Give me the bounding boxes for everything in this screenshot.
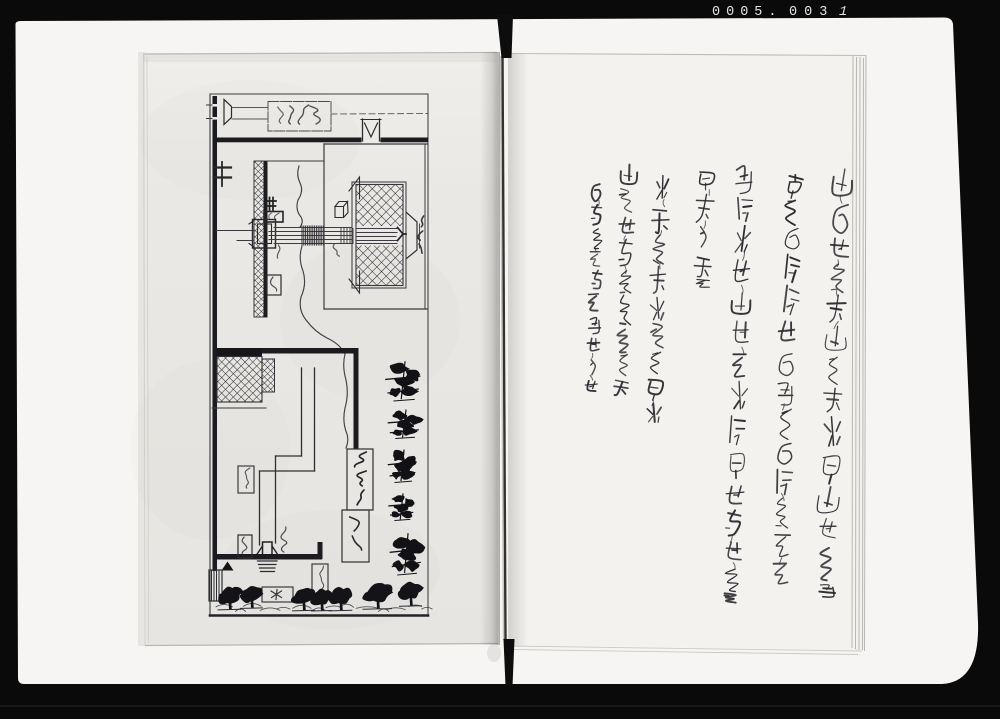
svg-text:003: 003 xyxy=(789,5,834,20)
svg-text:0005.: 0005. xyxy=(712,5,783,20)
